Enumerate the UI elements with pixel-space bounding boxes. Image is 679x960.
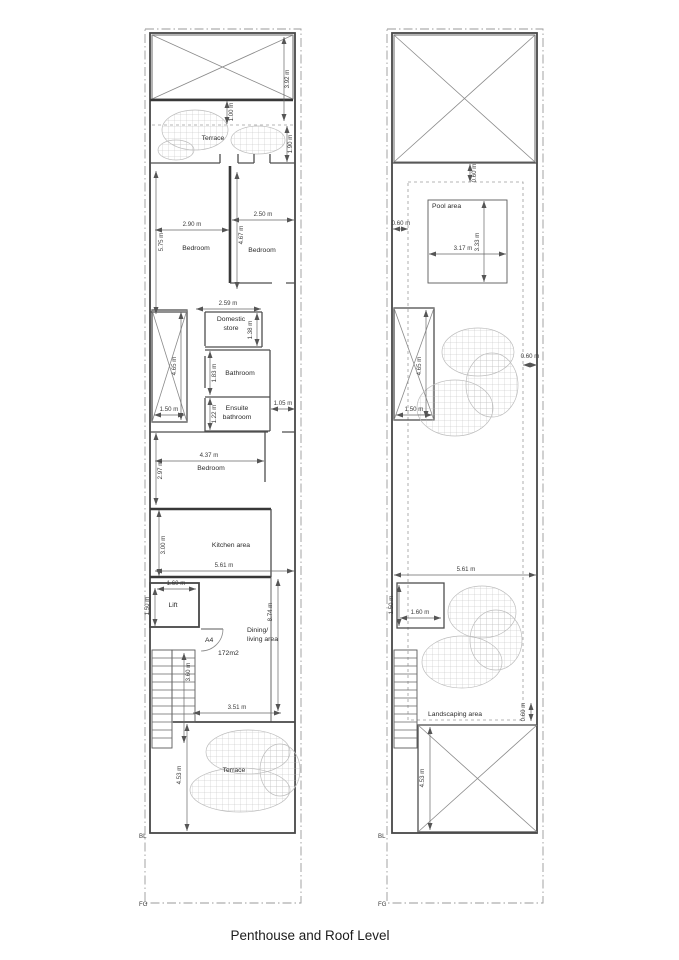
marker-bl-roof: BL [378,833,386,840]
dim-text: 4.53 m [419,769,426,788]
dim-text: 2.97 m [157,461,164,480]
dim-roof-width: 5.61 m [394,566,536,575]
dim-terrace-inset: 1.00 m [227,101,235,124]
dim-text: 1.50 m [144,597,151,616]
marker-fg-penthouse: FG [139,901,148,908]
dim-ensuite-depth: 1.22 m [210,398,218,430]
dim-text: 1.90 m [287,135,294,154]
dim-edge-left: 0.60 m [392,220,411,229]
dim-rooflight-depth-roof: 4.53 m [419,727,430,830]
dim-text: 5.61 m [215,562,234,569]
dim-text: 8.74 m [267,603,274,622]
room-label-domestic-store: Domestic [217,316,246,323]
dim-stair-void-length-penthouse: 4.65 m [171,312,181,420]
dim-text: 4.65 m [416,357,423,376]
floor-area-label: 172m2 [218,650,239,657]
dim-text: 3.51 m [228,704,247,711]
dim-text: 0.60 m [521,353,540,360]
plant-hatch-roof-mid [417,328,518,436]
dim-text: 1.05 m [274,400,293,407]
stairs-roof [394,650,417,748]
dim-text: 3.33 m [474,233,481,252]
lift-shaft-roof [397,583,444,628]
room-label-terrace-bottom: Terrace [223,767,246,774]
dim-store-width: 2.59 m [196,300,261,309]
rooflight-void-roof-top [392,35,537,163]
dim-text: 0.60 m [471,164,478,183]
marker-bl-penthouse: BL [139,833,147,840]
dim-rooflight-height: 3.92 m [284,37,291,121]
marker-fg-roof: FG [378,901,387,908]
room-label-ensuite: Ensuite [226,405,249,412]
dim-text: 0.60 m [520,703,527,722]
plant-hatch-roof-low [422,586,522,688]
floor-plan-drawing: 3.92 m 1.00 m 1.90 m 2.90 m 5.75 m 2.50 … [0,0,679,960]
dim-kitchen-width: 5.61 m [155,562,294,571]
room-label-dining-2: living area [247,636,278,643]
dim-text: 0.60 m [392,220,411,227]
dim-text: 5.61 m [457,566,476,573]
dim-parapet-offset: 0.60 m [470,164,478,183]
area-label-pool: Pool area [432,203,461,210]
dim-bathroom-depth: 1.83 m [210,351,218,395]
dim-living-length: 8.74 m [267,579,278,711]
dim-text: 1.38 m [247,321,254,340]
dim-text: 1.60 m [167,580,186,587]
dim-terrace-depth: 1.90 m [287,126,294,162]
room-label-dining: Dining/ [247,627,268,634]
room-label-bathroom: Bathroom [225,370,255,377]
dim-text: 1.22 m [211,405,218,424]
roof-plan: 0.60 m 0.60 m 3.17 m 3.33 m 4.65 m 1.50 … [378,29,543,908]
dim-edge-bottom: 0.60 m [520,703,531,722]
room-label-bedroom-3: Bedroom [197,465,225,472]
area-label-landscaping: Landscaping area [428,711,482,718]
rooflight-void-penthouse [150,35,293,100]
room-label-domestic-store-2: store [223,325,238,332]
door-ref-a4: A4 [205,637,214,644]
dim-bedroom3-width: 4.37 m [155,452,264,461]
dim-text: 1.50 m [405,406,424,413]
rooflight-void-roof-bottom [418,725,537,832]
pool-outline [428,200,507,283]
room-label-bedroom-1: Bedroom [182,245,210,252]
dim-text: 3.92 m [284,70,291,89]
dim-text: 1.60 m [411,609,430,616]
dim-living-width: 3.51 m [193,704,281,713]
dim-text: 4.67 m [238,226,245,245]
dim-text: 1.83 m [211,364,218,383]
dim-bedroom1-length: 5.75 m [156,171,165,314]
dim-lift-width-penthouse: 1.60 m [157,580,196,589]
dim-text: 4.53 m [176,766,183,785]
dim-bedroom2-length: 4.67 m [237,172,245,289]
dim-text: 3.60 m [185,663,192,682]
dim-text: 3.17 m [454,245,473,252]
dim-corridor-width: 1.05 m [271,400,295,409]
dim-text: 2.90 m [183,221,202,228]
dim-pool-length: 3.33 m [474,201,484,282]
room-label-terrace-top: Terrace [202,135,225,142]
dim-pool-width: 3.17 m [429,245,506,254]
room-label-bedroom-2: Bedroom [248,247,276,254]
dim-bedroom1-width: 2.90 m [155,221,229,230]
room-label-ensuite-2: bathroom [223,414,252,421]
site-boundary-roof [387,29,543,903]
dim-terrace-bottom-depth: 4.53 m [176,724,187,831]
dim-text: 4.37 m [200,452,219,459]
dim-text: 2.59 m [219,300,238,307]
dim-text: 1.00 m [228,103,235,122]
dim-text: 4.65 m [171,357,178,376]
dim-text: 2.50 m [254,211,273,218]
dim-stair-void-width-penthouse: 1.50 m [154,406,185,415]
penthouse-plan: 3.92 m 1.00 m 1.90 m 2.90 m 5.75 m 2.50 … [139,29,301,908]
dim-text: 3.00 m [160,536,167,555]
floor-plan-sheet: 3.92 m 1.00 m 1.90 m 2.90 m 5.75 m 2.50 … [0,0,679,960]
dim-text: 5.75 m [158,233,165,252]
dim-bedroom2-width: 2.50 m [232,211,294,220]
dim-store-depth: 1.38 m [247,313,257,346]
dim-text: 1.50 m [388,596,395,615]
dim-text: 1.50 m [160,406,179,413]
room-label-lift: Lift [168,602,177,609]
drawing-title: Penthouse and Roof Level [230,928,389,943]
dim-lift-width-roof: 1.60 m [400,609,441,618]
room-label-kitchen: Kitchen area [212,542,250,549]
dim-bedroom3-depth: 2.97 m [156,433,164,505]
dim-kitchen-depth: 3.00 m [159,510,167,576]
